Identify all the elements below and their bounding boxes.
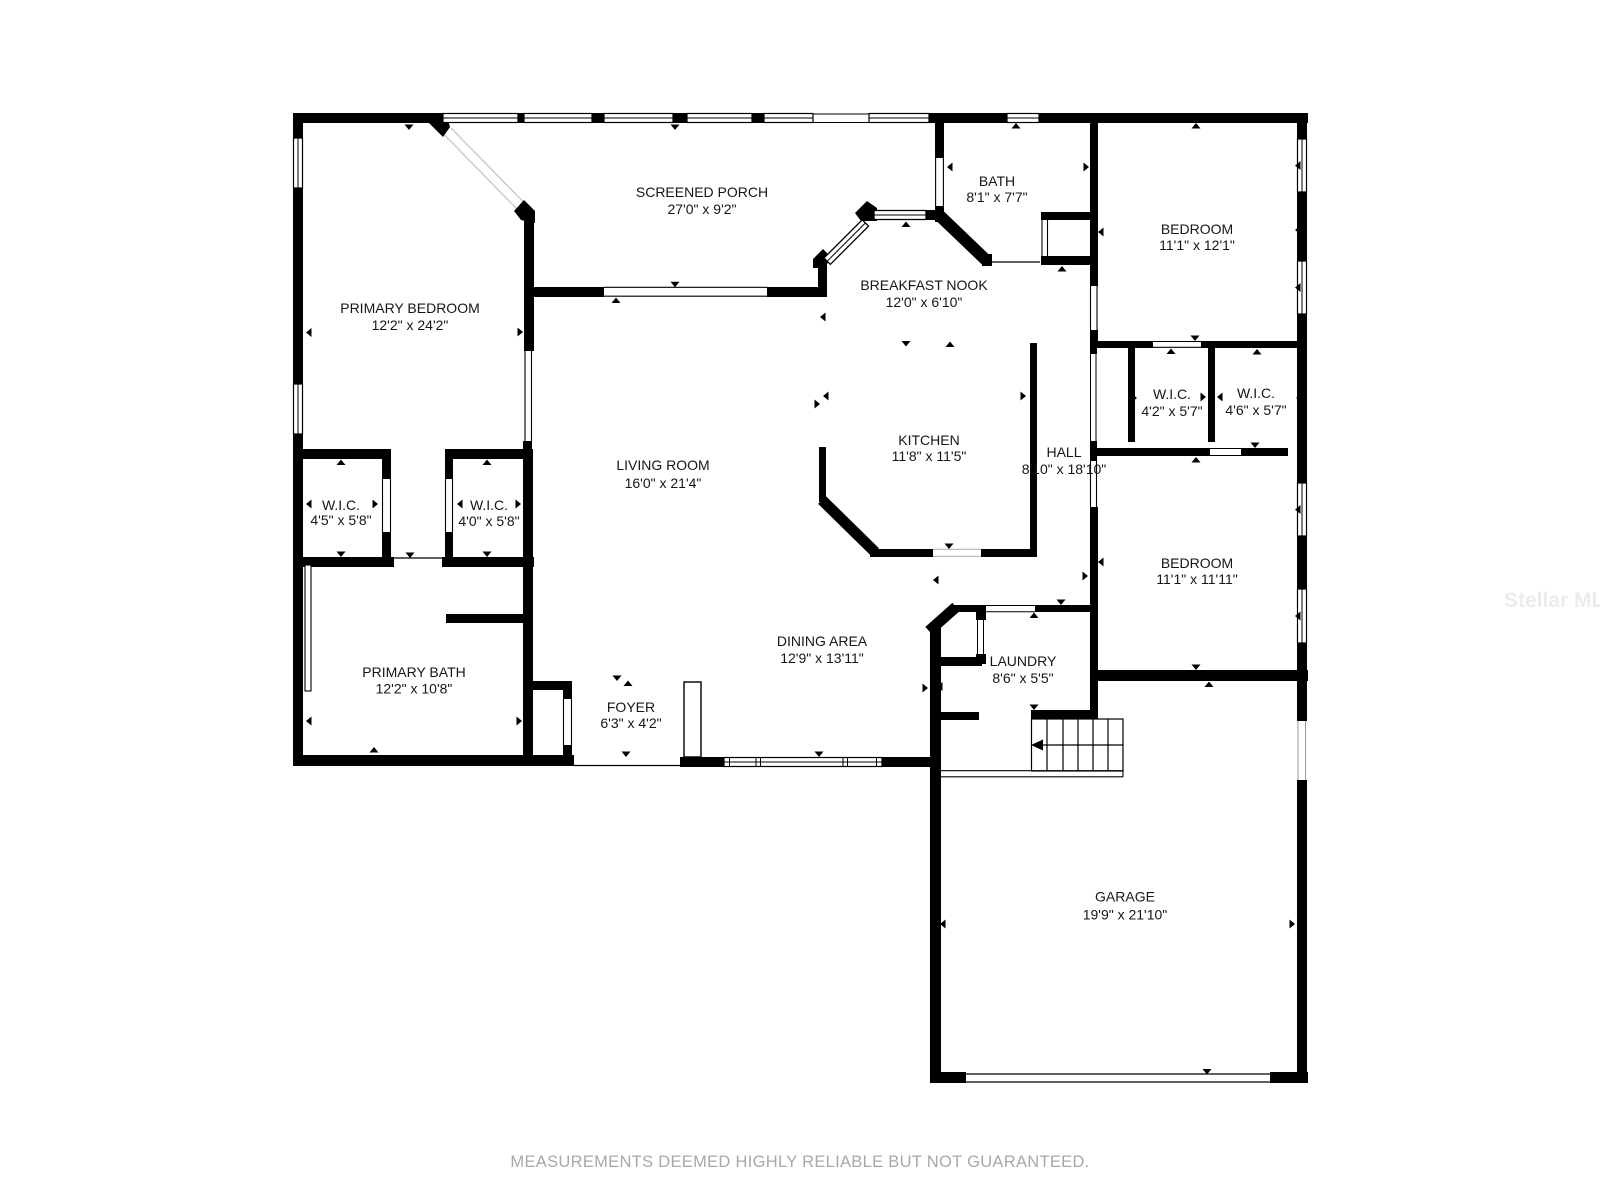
svg-text:11'8" x 11'5": 11'8" x 11'5"	[892, 448, 967, 464]
svg-text:W.I.C.: W.I.C.	[1153, 386, 1191, 402]
svg-text:4'2" x 5'7": 4'2" x 5'7"	[1141, 403, 1202, 419]
svg-text:LAUNDRY: LAUNDRY	[990, 653, 1057, 669]
svg-text:8'6" x 5'5": 8'6" x 5'5"	[992, 670, 1053, 686]
svg-text:BEDROOM: BEDROOM	[1161, 221, 1233, 237]
svg-text:12'2" x 24'2": 12'2" x 24'2"	[372, 317, 449, 333]
svg-text:12'2" x 10'8": 12'2" x 10'8"	[376, 681, 453, 697]
svg-text:BEDROOM: BEDROOM	[1161, 555, 1233, 571]
svg-text:19'9" x 21'10": 19'9" x 21'10"	[1083, 907, 1168, 923]
svg-text:11'1" x 11'11": 11'1" x 11'11"	[1156, 571, 1237, 587]
svg-text:DINING AREA: DINING AREA	[777, 633, 868, 649]
svg-text:11'1" x 12'1": 11'1" x 12'1"	[1159, 237, 1235, 253]
svg-text:6'3" x 4'2": 6'3" x 4'2"	[600, 715, 661, 731]
svg-text:8'1" x 7'7": 8'1" x 7'7"	[966, 189, 1027, 205]
svg-text:BREAKFAST NOOK: BREAKFAST NOOK	[860, 277, 988, 293]
svg-text:MEASUREMENTS DEEMED HIGHLY REL: MEASUREMENTS DEEMED HIGHLY RELIABLE BUT …	[510, 1153, 1089, 1171]
svg-text:Stellar MLS: Stellar MLS	[1504, 589, 1600, 612]
svg-text:4'0" x 5'8": 4'0" x 5'8"	[458, 513, 519, 529]
svg-text:FOYER: FOYER	[607, 699, 655, 715]
svg-text:12'0" x 6'10": 12'0" x 6'10"	[886, 294, 963, 310]
svg-text:12'9" x 13'11": 12'9" x 13'11"	[780, 650, 864, 666]
svg-text:27'0" x 9'2": 27'0" x 9'2"	[668, 201, 737, 217]
svg-text:SCREENED PORCH: SCREENED PORCH	[636, 184, 768, 200]
svg-text:LIVING ROOM: LIVING ROOM	[616, 457, 709, 473]
svg-text:PRIMARY BEDROOM: PRIMARY BEDROOM	[340, 300, 480, 316]
svg-text:GARAGE: GARAGE	[1095, 889, 1155, 905]
svg-text:8'10" x 18'10": 8'10" x 18'10"	[1022, 461, 1107, 477]
svg-text:W.I.C.: W.I.C.	[322, 497, 360, 513]
svg-text:16'0" x 21'4": 16'0" x 21'4"	[625, 475, 702, 491]
svg-text:HALL: HALL	[1046, 444, 1081, 460]
svg-text:W.I.C.: W.I.C.	[1237, 385, 1275, 401]
svg-text:4'6" x 5'7": 4'6" x 5'7"	[1225, 402, 1286, 418]
svg-text:KITCHEN: KITCHEN	[898, 432, 959, 448]
svg-text:PRIMARY BATH: PRIMARY BATH	[362, 664, 465, 680]
svg-text:4'5" x 5'8": 4'5" x 5'8"	[310, 512, 371, 528]
svg-text:W.I.C.: W.I.C.	[470, 497, 508, 513]
svg-text:BATH: BATH	[979, 173, 1015, 189]
